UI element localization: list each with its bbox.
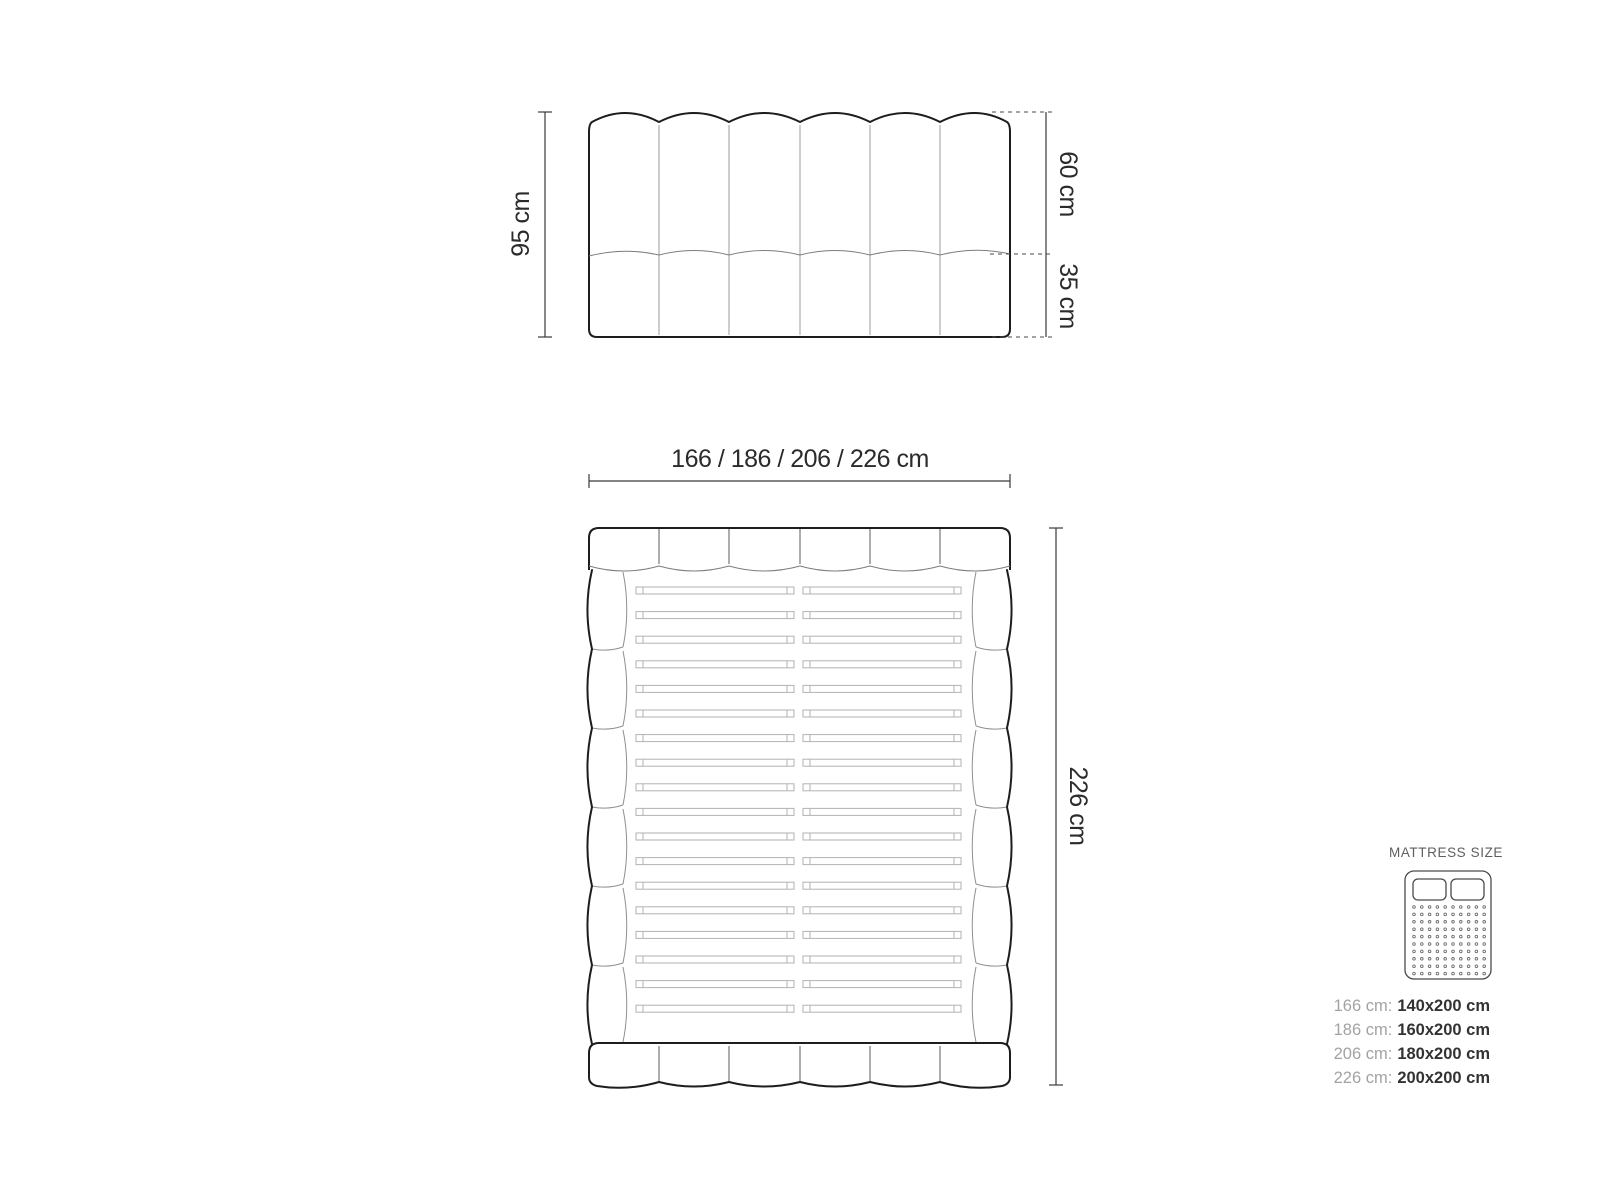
bed-headboard-strip-dividers	[659, 529, 940, 564]
mattress-size-row: 206 cm:180x200 cm	[1334, 1045, 1490, 1063]
slat-right-half	[803, 784, 961, 791]
bed-headboard-strip-bottom-seam	[589, 566, 1010, 571]
slat-left-half	[636, 858, 794, 865]
bed-width-label: 166 / 186 / 206 / 226 cm	[671, 445, 929, 473]
slat-right-half	[803, 808, 961, 815]
slat-right-half	[803, 931, 961, 938]
slat-left-half	[636, 685, 794, 692]
mattress-size-legend: MATTRESS SIZE 166 cm:140x200 cm 186 cm:1…	[1334, 845, 1503, 1087]
slat-left-half	[636, 636, 794, 643]
slat-left-half	[636, 956, 794, 963]
slat-right-half	[803, 710, 961, 717]
slat-right-half	[803, 759, 961, 766]
mattress-icon	[1405, 871, 1491, 979]
left-rail-segments	[592, 572, 627, 1042]
slat-left-half	[636, 931, 794, 938]
bed-length-dimension: 226 cm	[1049, 528, 1092, 1085]
mattress-size-row: 166 cm:140x200 cm	[1334, 997, 1490, 1015]
headboard-height-dimension: 95 cm	[507, 112, 552, 337]
slat-left-half	[636, 981, 794, 988]
rail-inner-seams	[592, 572, 627, 1042]
slat-right-half	[803, 587, 961, 594]
headboard-height-label: 95 cm	[507, 191, 535, 257]
slat-left-half	[636, 661, 794, 668]
slat-left-half	[636, 612, 794, 619]
slat-layer	[636, 587, 961, 1012]
right-rail-outer-edge	[1007, 570, 1012, 1044]
right-rail-segments	[972, 572, 1007, 1042]
headboard-front-view	[589, 113, 1010, 337]
mattress-icon-pillow-right	[1451, 879, 1484, 900]
slat-right-half	[803, 833, 961, 840]
bed-dimensions-diagram: 95 cm 60 cm 35 cm 166 / 186 / 206 / 226 …	[0, 0, 1600, 1200]
slat-left-half	[636, 710, 794, 717]
slat-right-half	[803, 685, 961, 692]
slat-right-half	[803, 612, 961, 619]
slat-right-half	[803, 636, 961, 643]
slat-right-half	[803, 735, 961, 742]
slat-left-half	[636, 759, 794, 766]
mattress-icon-pillow-left	[1413, 879, 1446, 900]
rail-inner-seams	[972, 572, 1007, 1042]
slat-right-half	[803, 882, 961, 889]
mattress-legend-title: MATTRESS SIZE	[1389, 845, 1503, 860]
slat-left-half	[636, 1005, 794, 1012]
slat-left-half	[636, 587, 794, 594]
headboard-lower-label: 35 cm	[1054, 263, 1082, 329]
slat-left-half	[636, 808, 794, 815]
slat-right-half	[803, 981, 961, 988]
left-rail-outer-edge	[588, 570, 593, 1044]
bed-dimensions-page: 95 cm 60 cm 35 cm 166 / 186 / 206 / 226 …	[0, 0, 1600, 1200]
slat-right-half	[803, 956, 961, 963]
slat-right-half	[803, 858, 961, 865]
mattress-size-row: 226 cm:200x200 cm	[1334, 1069, 1490, 1087]
bed-width-dimension: 166 / 186 / 206 / 226 cm	[589, 445, 1010, 488]
slat-right-half	[803, 661, 961, 668]
slat-right-half	[803, 907, 961, 914]
slat-left-half	[636, 882, 794, 889]
slat-right-half	[803, 1005, 961, 1012]
bed-top-view	[588, 528, 1012, 1088]
slat-left-half	[636, 907, 794, 914]
slat-left-half	[636, 735, 794, 742]
slat-left-half	[636, 784, 794, 791]
slat-left-half	[636, 833, 794, 840]
bed-length-label: 226 cm	[1064, 767, 1092, 846]
mattress-size-row: 186 cm:160x200 cm	[1334, 1021, 1490, 1039]
mattress-size-list: 166 cm:140x200 cm 186 cm:160x200 cm 206 …	[1334, 997, 1490, 1087]
headboard-upper-label: 60 cm	[1054, 151, 1082, 217]
